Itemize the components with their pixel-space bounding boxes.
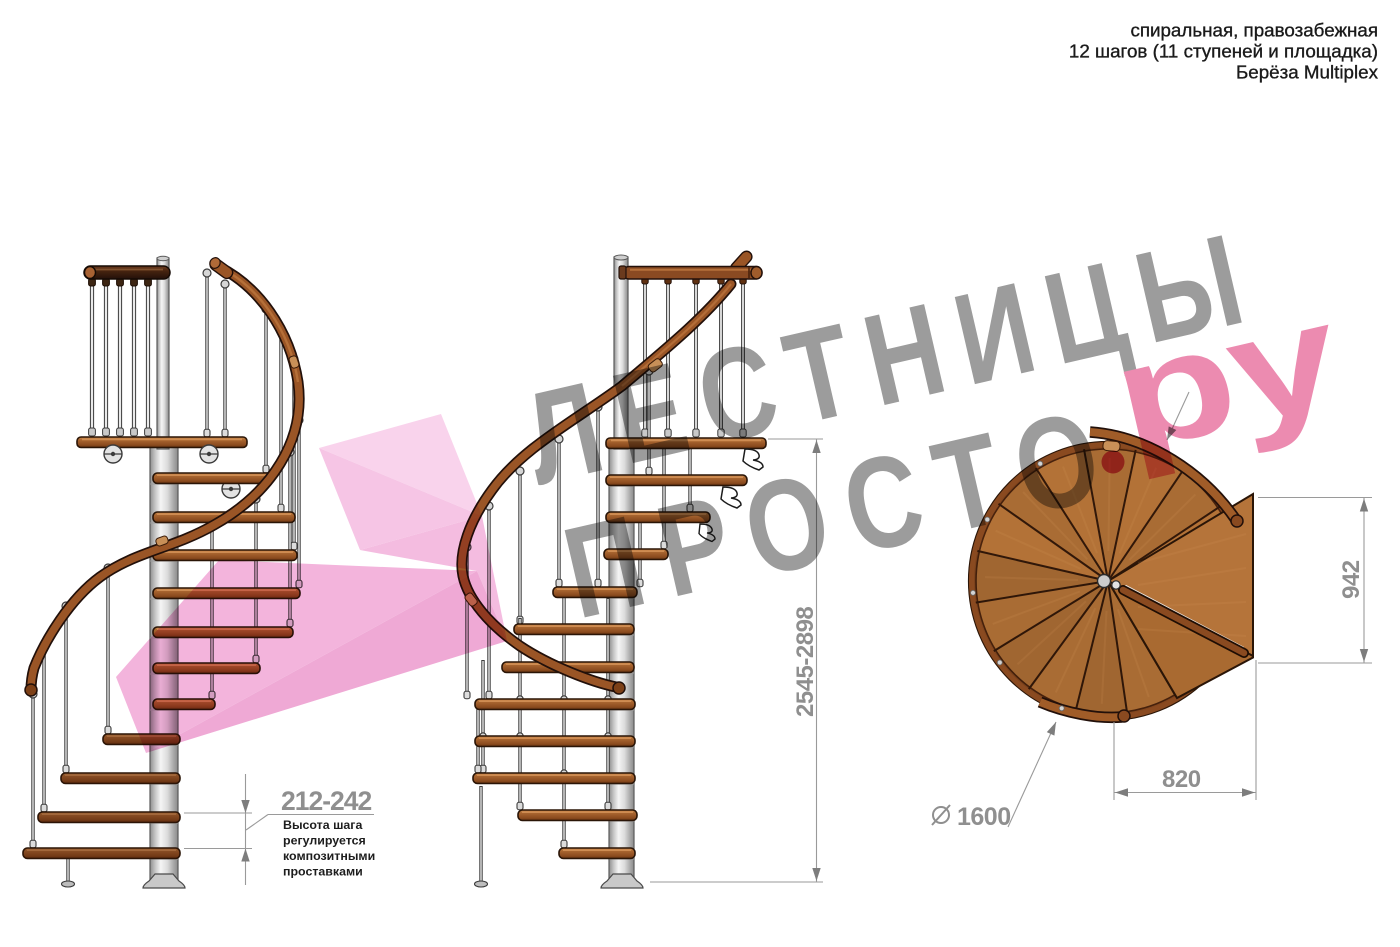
svg-text:942: 942: [1338, 560, 1365, 599]
svg-text:2545-2898: 2545-2898: [792, 607, 819, 717]
svg-text:Высота шага: Высота шага: [283, 818, 362, 832]
svg-text:проставками: проставками: [283, 865, 363, 879]
svg-text:820: 820: [1162, 766, 1201, 793]
svg-text:12 шагов (11 ступеней и площад: 12 шагов (11 ступеней и площадка): [1069, 41, 1378, 62]
svg-text:1600: 1600: [957, 803, 1011, 831]
svg-text:спиральная, правозабежная: спиральная, правозабежная: [1130, 20, 1378, 41]
svg-text:Берёза Multiplex: Берёза Multiplex: [1236, 62, 1379, 83]
svg-text:регулируется: регулируется: [283, 834, 366, 848]
svg-text:композитными: композитными: [283, 849, 375, 863]
svg-text:212-242: 212-242: [281, 786, 372, 816]
